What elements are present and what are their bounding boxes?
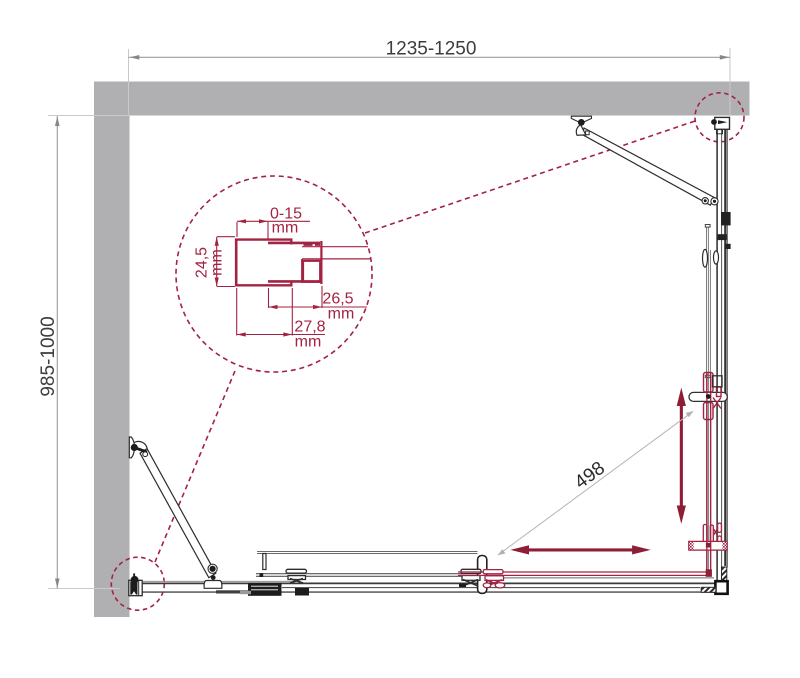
svg-text:985-1000: 985-1000 [38,316,59,396]
svg-text:mm: mm [272,220,299,237]
svg-text:mm: mm [209,249,226,276]
svg-text:mm: mm [328,306,355,323]
svg-text:mm: mm [295,334,322,351]
svg-text:1235-1250: 1235-1250 [386,39,477,60]
